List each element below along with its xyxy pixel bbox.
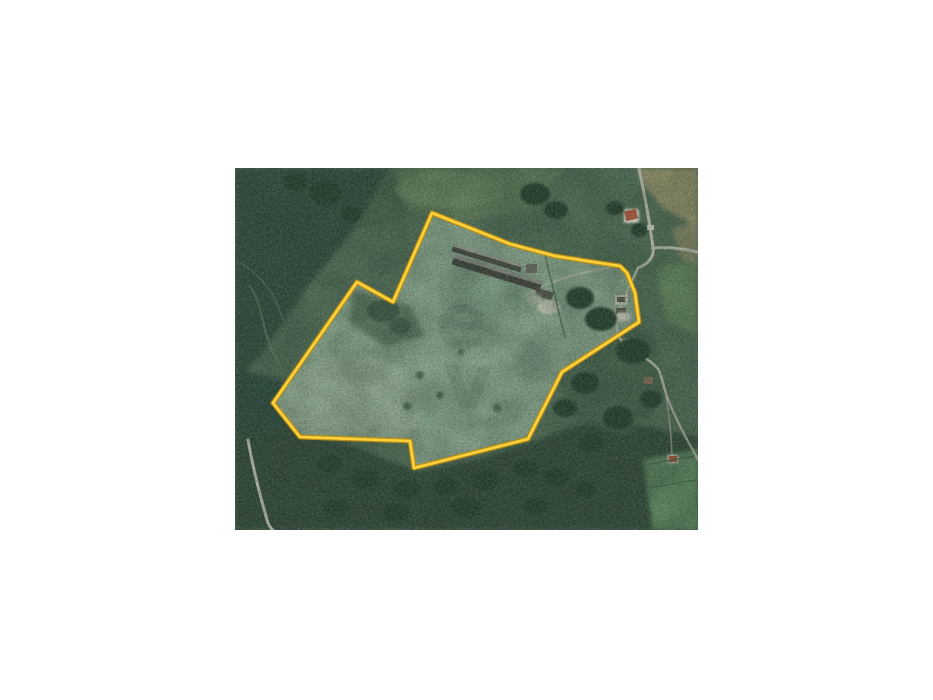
watermark: e v <box>435 277 494 427</box>
page-canvas: e v <box>0 0 933 700</box>
aerial-parcel-photo: e v <box>235 168 698 530</box>
watermark-letter: v <box>443 337 494 427</box>
aerial-photo-svg: e v <box>235 168 698 530</box>
